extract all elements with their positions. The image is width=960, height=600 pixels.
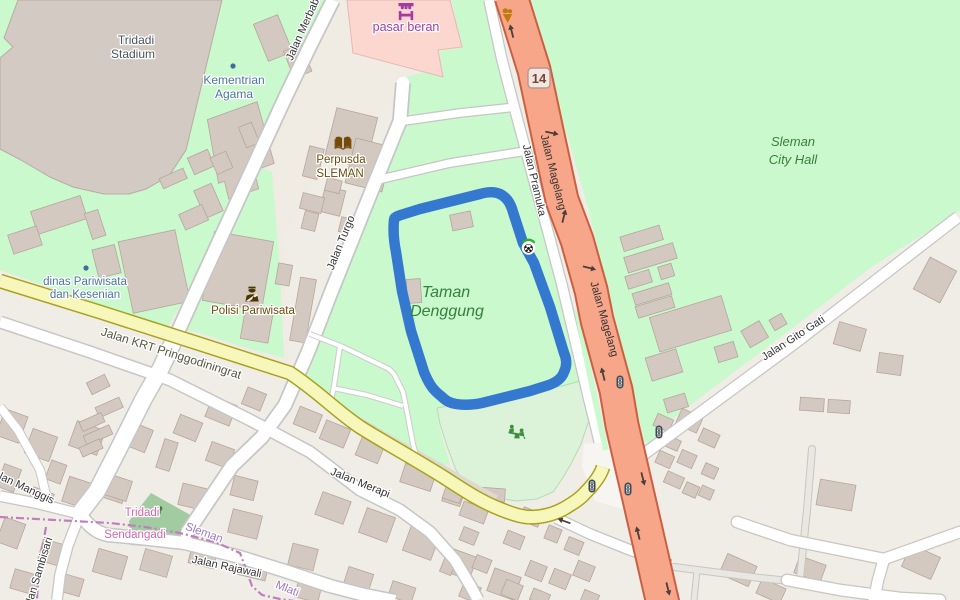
svg-text:Sendangadi: Sendangadi <box>104 529 165 541</box>
svg-text:14: 14 <box>532 71 547 86</box>
svg-text:pasar beran: pasar beran <box>373 20 440 34</box>
svg-text:SLEMAN: SLEMAN <box>316 168 363 180</box>
svg-text:Kementrian: Kementrian <box>203 73 264 87</box>
svg-text:Polisi Pariwisata: Polisi Pariwisata <box>211 305 295 317</box>
svg-text:Tridadi: Tridadi <box>118 33 154 47</box>
svg-text:Agama: Agama <box>215 87 253 101</box>
svg-text:Sleman: Sleman <box>771 134 815 149</box>
svg-text:dan Kesenian: dan Kesenian <box>50 289 120 301</box>
svg-text:Denggung: Denggung <box>410 303 484 320</box>
svg-text:Stadium: Stadium <box>111 47 155 61</box>
svg-text:Taman: Taman <box>422 284 470 301</box>
svg-text:City Hall: City Hall <box>769 152 819 167</box>
svg-text:dinas Pariwisata: dinas Pariwisata <box>43 276 127 288</box>
svg-text:Tridadi: Tridadi <box>125 507 160 519</box>
svg-text:Perpusda: Perpusda <box>316 154 366 166</box>
